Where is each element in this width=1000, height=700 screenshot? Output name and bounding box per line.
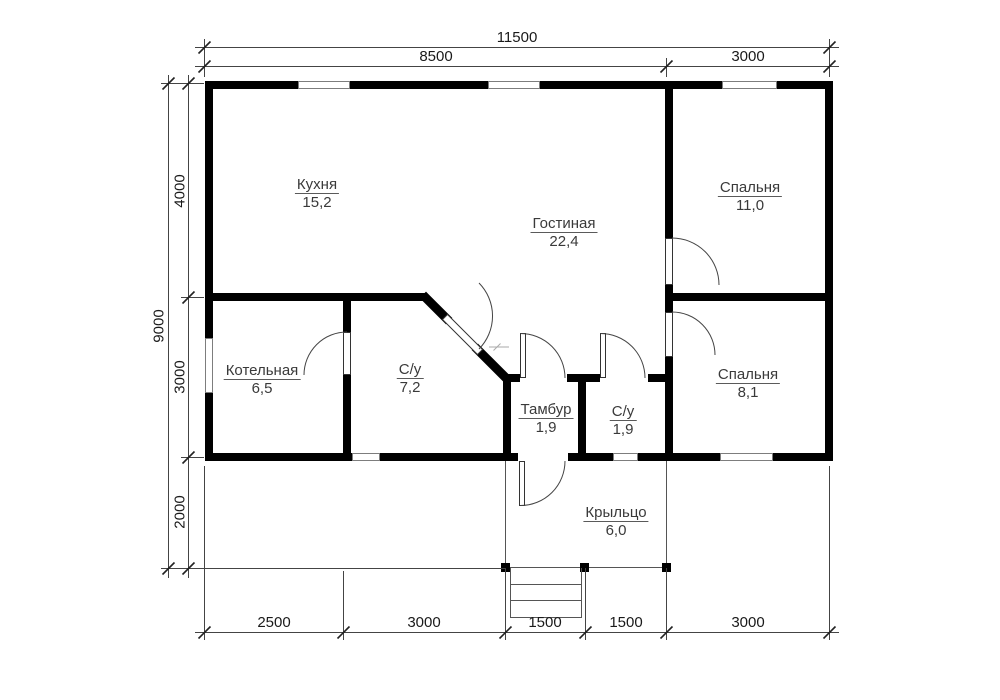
- room-label-bedroom1: Спальня 11,0: [718, 179, 782, 214]
- door-arc-bath2: [601, 334, 646, 379]
- windows: [206, 82, 777, 461]
- door-leaf-porch: [520, 462, 525, 506]
- wall-right: [825, 81, 833, 461]
- wall-left: [205, 81, 213, 461]
- room-name: Кухня: [295, 176, 339, 194]
- door-leaf-bedroom1: [666, 239, 673, 285]
- wall-boiler-a: [343, 301, 351, 332]
- doors: [344, 239, 673, 506]
- dim-bottom-seg-1: 3000: [407, 614, 440, 631]
- room-name: Тамбур: [519, 401, 574, 419]
- floor-plan: Кухня 15,2 Гостиная 22,4 Спальня 11,0 Ко…: [0, 0, 1000, 700]
- room-label-boiler: Котельная 6,5: [224, 362, 301, 397]
- dim-bottom-seg-2: 1500: [528, 614, 561, 631]
- wall-mid-left: [205, 293, 427, 301]
- room-area: 6,5: [224, 380, 301, 397]
- room-label-bath2: С/у 1,9: [610, 403, 637, 438]
- dim-height-seg-1: 3000: [172, 360, 189, 393]
- dim-bottom-seg-4: 3000: [731, 614, 764, 631]
- dim-height-seg-0: 4000: [172, 174, 189, 207]
- room-name: Спальня: [716, 366, 780, 384]
- dim-bottom-seg-0: 2500: [257, 614, 290, 631]
- room-area: 11,0: [718, 197, 782, 214]
- wall-tambour-top-b: [567, 374, 600, 382]
- door-arc-hall-diagonal: [479, 283, 493, 349]
- room-area: 1,9: [610, 421, 637, 438]
- wall-boiler-b: [343, 375, 351, 453]
- room-label-bedroom2: Спальня 8,1: [716, 366, 780, 401]
- room-label-porch: Крыльцо 6,0: [583, 504, 648, 539]
- door-leaf-hall-diagonal: [443, 315, 483, 355]
- door-arc-bedroom1: [672, 238, 719, 285]
- wall-tambour-left: [503, 378, 511, 461]
- door-leaf-tambour: [521, 334, 526, 378]
- room-area: 22,4: [531, 233, 598, 250]
- dim-bottom-seg-3: 1500: [609, 614, 642, 631]
- room-label-living: Гостиная 22,4: [531, 215, 598, 250]
- door-leaf-bedroom2: [666, 313, 673, 357]
- dim-width-seg-1: 3000: [731, 48, 764, 65]
- room-name: Крыльцо: [583, 504, 648, 522]
- room-label-kitchen: Кухня 15,2: [295, 176, 339, 211]
- dim-total-width: 11500: [497, 29, 538, 46]
- room-area: 1,9: [519, 419, 574, 436]
- window-bedroom2: [721, 454, 773, 461]
- floor-plan-drawing: [0, 0, 1000, 700]
- dim-width-seg-0: 8500: [419, 48, 452, 65]
- door-arc-tambour: [521, 334, 566, 379]
- wall-mid-right: [665, 293, 833, 301]
- room-name: Спальня: [718, 179, 782, 197]
- room-area: 7,2: [397, 379, 424, 396]
- wall-tambour-top-c: [648, 374, 665, 382]
- room-area: 15,2: [295, 194, 339, 211]
- room-name: Гостиная: [531, 215, 598, 233]
- window-bath2: [614, 454, 638, 461]
- window-boiler: [206, 339, 213, 393]
- wall-bedrooms-a: [665, 89, 673, 238]
- door-arc-bedroom2: [672, 312, 715, 355]
- room-name: Котельная: [224, 362, 301, 380]
- dimension-ticks: [163, 42, 836, 639]
- room-label-bath1: С/у 7,2: [397, 361, 424, 396]
- stairs: [511, 568, 582, 618]
- window-bedroom1: [723, 82, 777, 89]
- window-kitchen: [299, 82, 350, 89]
- room-name: С/у: [397, 361, 424, 379]
- room-name: С/у: [610, 403, 637, 421]
- wall-tambour-divider: [578, 382, 586, 453]
- room-area: 6,0: [583, 522, 648, 539]
- door-leaf-bath2: [601, 334, 606, 378]
- dim-height-seg-2: 2000: [172, 495, 189, 528]
- wall-bedrooms-b: [665, 285, 673, 312]
- room-area: 8,1: [716, 384, 780, 401]
- room-label-tambour: Тамбур 1,9: [519, 401, 574, 436]
- dim-total-height: 9000: [151, 309, 168, 342]
- window-bath1: [353, 454, 380, 461]
- door-center-mark: [489, 344, 509, 351]
- wall-bedrooms-c: [665, 357, 673, 461]
- door-arcs: [304, 238, 719, 506]
- window-living: [489, 82, 540, 89]
- door-leaf-boiler: [344, 333, 351, 375]
- dimension-lines: [161, 39, 839, 640]
- door-arc-boiler: [304, 332, 347, 375]
- door-arc-porch: [521, 461, 566, 506]
